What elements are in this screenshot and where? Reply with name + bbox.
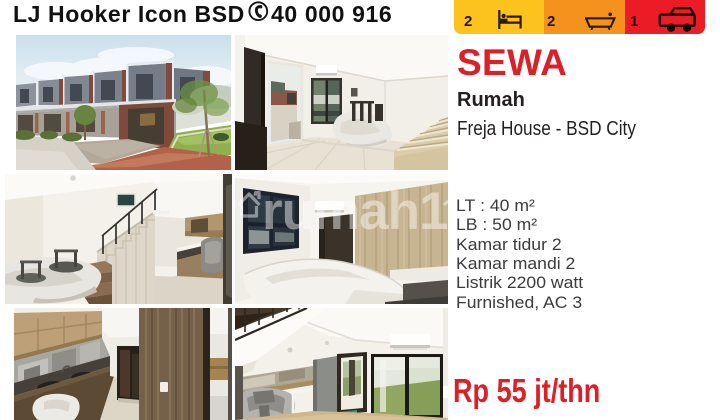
svg-text:rumah12: rumah12 xyxy=(262,182,448,241)
